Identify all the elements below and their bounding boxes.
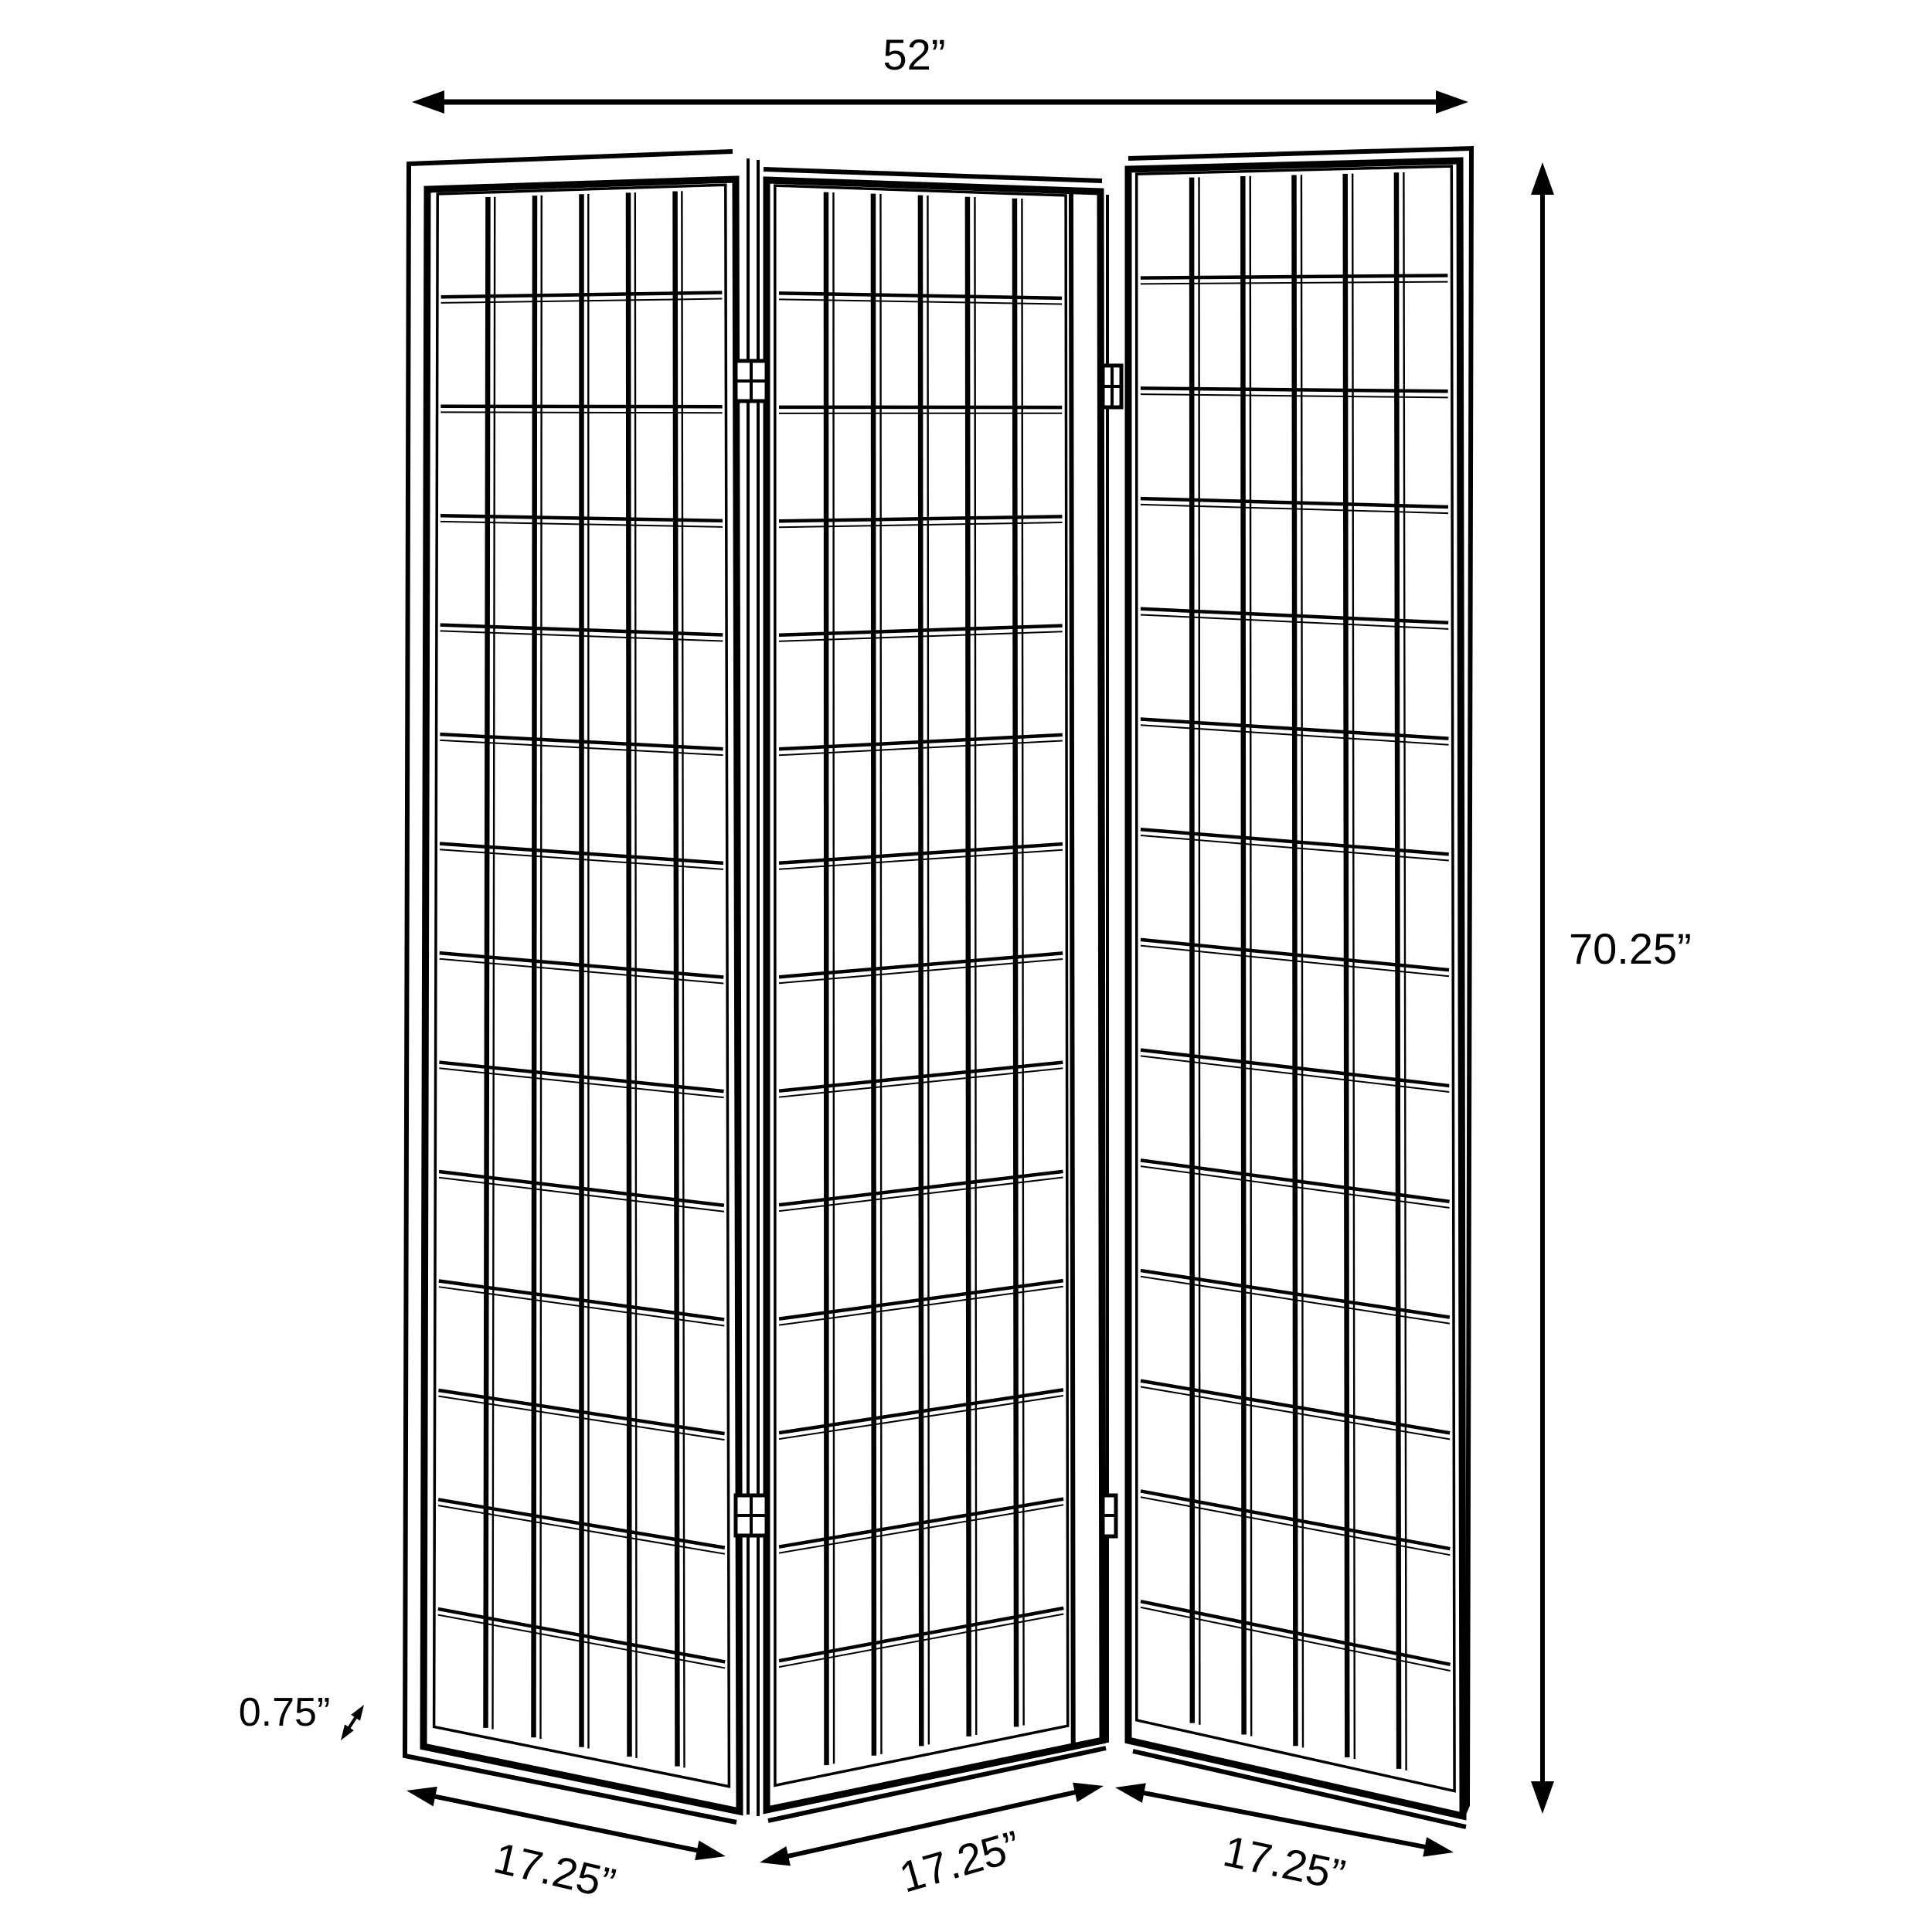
height-arrow-head-end: [1531, 1781, 1554, 1814]
right-panel-width-arrow-head-start: [1115, 1783, 1146, 1803]
panel-right: [1128, 148, 1471, 1827]
screen-line-art: [405, 148, 1471, 1827]
height-arrow-head-start: [1531, 162, 1554, 195]
frame-thickness-dimension-label: 0.75”: [239, 1690, 331, 1735]
total-width-arrow-head-end: [1436, 90, 1468, 114]
panel-middle-side-strip-edge: [1071, 191, 1073, 1747]
frame-thickness-arrow-head-start: [341, 1724, 354, 1740]
panel-middle: [764, 169, 1106, 1821]
middle-panel-width-arrow-head-start: [760, 1846, 791, 1866]
left-panel-width-arrow-line: [430, 1795, 702, 1852]
left-panel-width-dimension-label: 17.25”: [489, 1833, 620, 1908]
grid-rail-shadow: [440, 412, 722, 413]
middle-panel-width-arrow-head-end: [1073, 1783, 1104, 1802]
right-panel-width-arrow-head-end: [1423, 1837, 1454, 1857]
panel-left: [405, 151, 740, 1822]
folding-screen-dimension-diagram: 52” 70.25” 17.25” 17.25” 17.25” 0.75”: [0, 0, 1932, 1932]
grid-rail: [1141, 275, 1448, 277]
hinge-right-junction-upper: [1103, 366, 1121, 407]
left-panel-width-arrow-head-start: [406, 1787, 437, 1807]
frame-thickness-arrow: [341, 1705, 364, 1740]
total-width-arrow-head-start: [412, 90, 444, 114]
total-width-arrow: [412, 90, 1468, 114]
frame-thickness-arrow-head-end: [351, 1705, 364, 1721]
left-panel-width-arrow-head-end: [695, 1841, 726, 1861]
height-dimension-label: 70.25”: [1569, 924, 1692, 973]
total-width-dimension-label: 52”: [883, 30, 946, 79]
hinge-right-junction-lower: [1103, 1495, 1116, 1536]
hinge-left-junction-upper: [736, 361, 767, 401]
height-arrow: [1531, 162, 1554, 1814]
middle-panel-width-dimension-label: 17.25”: [894, 1821, 1026, 1901]
hinge-left-junction-lower: [736, 1495, 767, 1536]
right-panel-width-dimension-label: 17.25”: [1219, 1826, 1349, 1900]
panel-middle-outer-frame: [767, 180, 1103, 1810]
diagram-canvas: 52” 70.25” 17.25” 17.25” 17.25” 0.75”: [0, 0, 1932, 1932]
